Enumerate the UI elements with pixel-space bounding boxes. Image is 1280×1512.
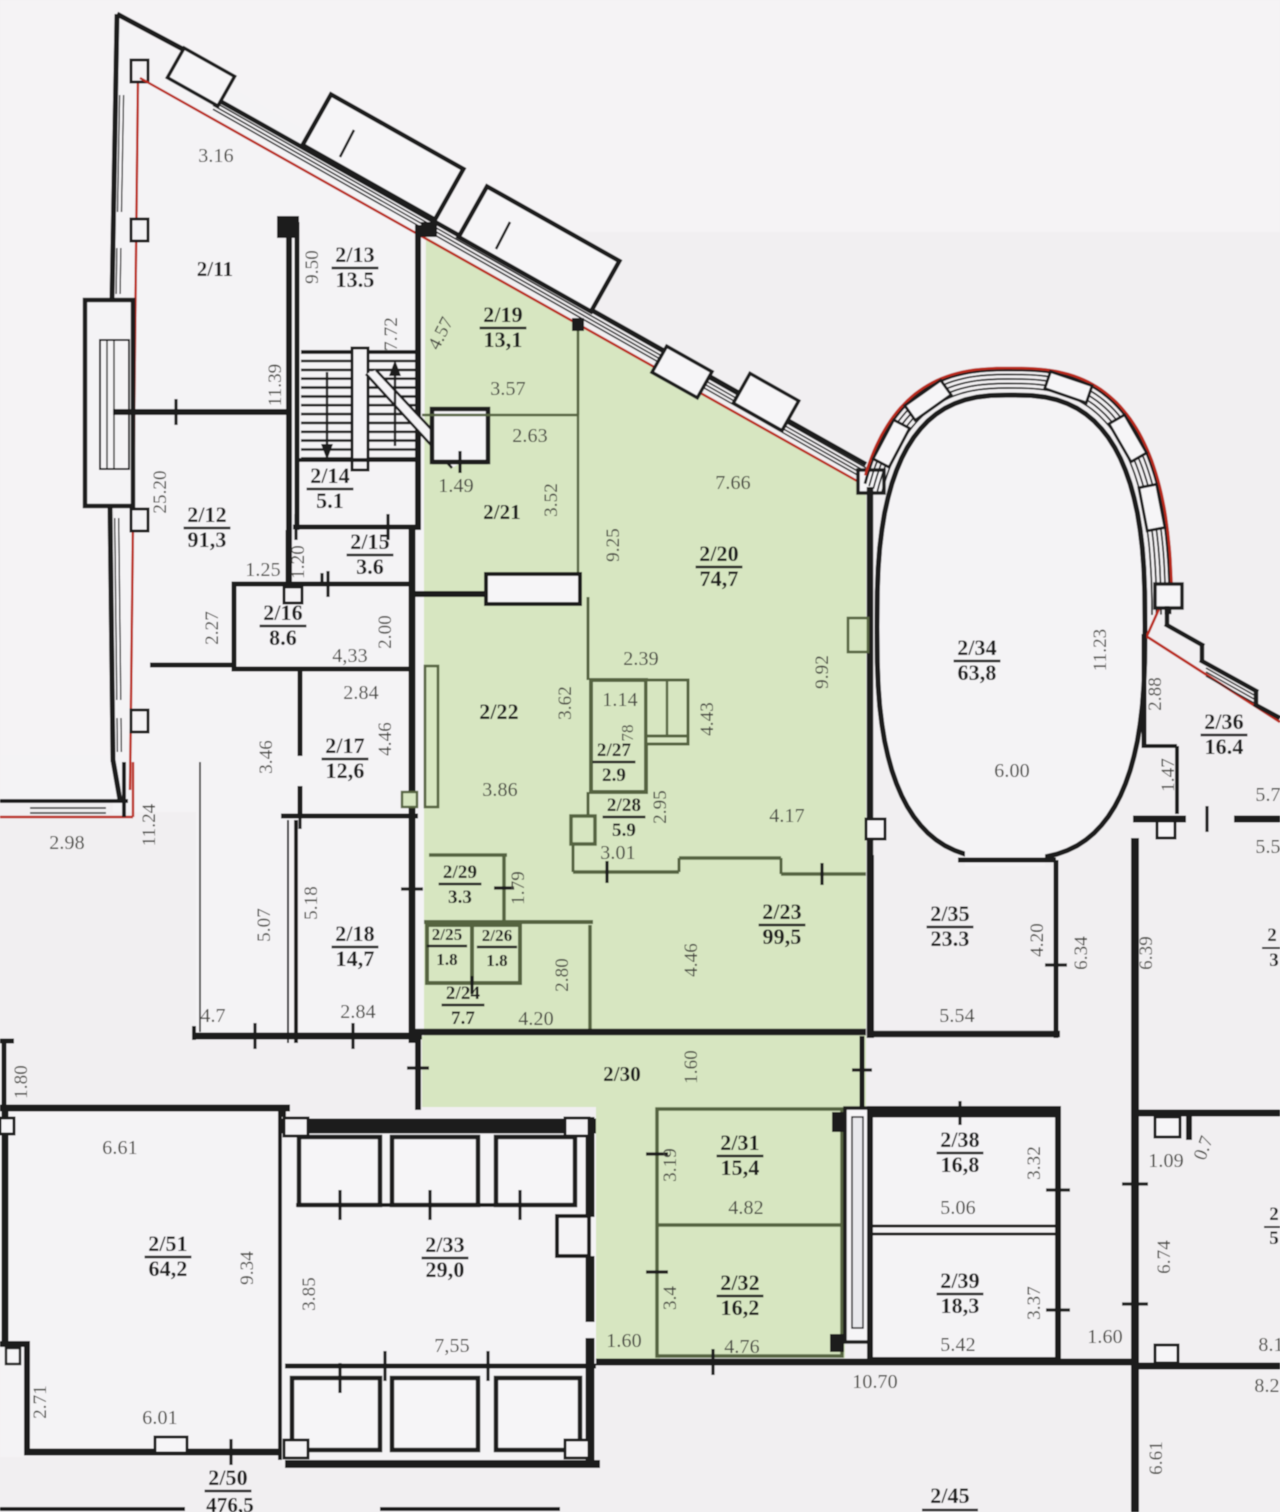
svg-text:5.06: 5.06 [940, 1197, 975, 1219]
svg-text:3.86: 3.86 [482, 779, 517, 801]
svg-text:2.80: 2.80 [552, 958, 573, 992]
svg-text:2/21: 2/21 [483, 500, 521, 524]
svg-text:14,7: 14,7 [336, 946, 375, 971]
svg-text:10.70: 10.70 [852, 1371, 898, 1393]
svg-text:2.95: 2.95 [650, 790, 671, 824]
svg-text:2/26: 2/26 [482, 926, 513, 945]
svg-text:1.80: 1.80 [11, 1065, 32, 1099]
svg-text:2/13: 2/13 [335, 242, 375, 267]
svg-text:8.6: 8.6 [269, 625, 297, 650]
svg-text:6.01: 6.01 [142, 1407, 177, 1429]
svg-text:2.9: 2.9 [602, 765, 626, 786]
svg-text:2.71: 2.71 [30, 1385, 51, 1419]
svg-text:2/24: 2/24 [446, 983, 481, 1004]
svg-text:2.39: 2.39 [623, 648, 658, 670]
svg-text:3.46: 3.46 [256, 740, 277, 774]
svg-text:78: 78 [618, 724, 637, 741]
svg-text:2.84: 2.84 [340, 1001, 375, 1023]
svg-text:5.54: 5.54 [939, 1005, 974, 1027]
svg-text:5.1: 5.1 [316, 488, 344, 513]
svg-text:63,8: 63,8 [958, 660, 997, 685]
svg-text:4.17: 4.17 [769, 805, 804, 827]
svg-text:2/34: 2/34 [957, 635, 997, 660]
svg-text:2/35: 2/35 [930, 901, 970, 926]
svg-text:5: 5 [1269, 1228, 1279, 1249]
svg-text:4,33: 4,33 [332, 645, 367, 667]
svg-text:4.7: 4.7 [200, 1005, 225, 1027]
svg-text:11.39: 11.39 [265, 364, 286, 407]
svg-text:13,1: 13,1 [484, 327, 523, 352]
svg-text:3.85: 3.85 [299, 1277, 320, 1311]
svg-text:2.98: 2.98 [49, 832, 84, 854]
svg-text:3.6: 3.6 [356, 554, 384, 579]
svg-text:2/19: 2/19 [483, 302, 523, 327]
svg-text:5.5: 5.5 [1255, 836, 1280, 858]
svg-text:3.01: 3.01 [600, 842, 635, 864]
svg-text:2/38: 2/38 [940, 1127, 980, 1152]
svg-text:3.3: 3.3 [448, 887, 472, 908]
svg-text:12,6: 12,6 [326, 758, 365, 783]
svg-text:4.76: 4.76 [724, 1336, 759, 1358]
svg-text:2: 2 [1269, 1204, 1279, 1225]
svg-text:1.60: 1.60 [681, 1050, 702, 1084]
svg-text:74,7: 74,7 [700, 566, 739, 591]
svg-text:1.79: 1.79 [508, 871, 529, 905]
svg-text:16,8: 16,8 [941, 1152, 980, 1177]
svg-text:1.25: 1.25 [245, 559, 280, 581]
svg-text:2/12: 2/12 [187, 502, 227, 527]
svg-text:4.82: 4.82 [728, 1197, 763, 1219]
svg-text:2/51: 2/51 [148, 1231, 188, 1256]
svg-text:91,3: 91,3 [188, 527, 227, 552]
svg-text:7.66: 7.66 [715, 472, 750, 494]
svg-text:5.42: 5.42 [940, 1334, 975, 1356]
svg-text:2/30: 2/30 [603, 1062, 641, 1086]
svg-text:8.2: 8.2 [1254, 1375, 1279, 1397]
svg-text:25.20: 25.20 [150, 470, 171, 513]
svg-text:2/50: 2/50 [208, 1465, 248, 1490]
svg-text:2/11: 2/11 [197, 257, 234, 281]
svg-text:3.52: 3.52 [541, 483, 562, 517]
svg-text:2/33: 2/33 [425, 1232, 465, 1257]
svg-text:2/39: 2/39 [940, 1268, 980, 1293]
svg-text:2/36: 2/36 [1204, 709, 1244, 734]
svg-text:2.84: 2.84 [343, 682, 378, 704]
svg-text:16.4: 16.4 [1205, 734, 1244, 759]
svg-text:8.1: 8.1 [1258, 1334, 1280, 1356]
svg-text:2/29: 2/29 [443, 862, 477, 883]
svg-text:23.3: 23.3 [931, 926, 970, 951]
svg-text:1.60: 1.60 [606, 1330, 641, 1352]
svg-text:2/14: 2/14 [310, 463, 350, 488]
svg-text:2.88: 2.88 [1145, 677, 1166, 711]
svg-text:29,0: 29,0 [426, 1257, 465, 1282]
svg-text:2/22: 2/22 [479, 699, 519, 724]
svg-text:6.61: 6.61 [102, 1137, 137, 1159]
svg-text:4.20: 4.20 [518, 1008, 553, 1030]
svg-text:5.18: 5.18 [301, 886, 322, 920]
svg-text:2/23: 2/23 [762, 899, 802, 924]
svg-text:2/20: 2/20 [699, 541, 739, 566]
svg-text:1.60: 1.60 [1087, 1326, 1122, 1348]
svg-text:2/28: 2/28 [607, 795, 641, 816]
svg-text:9.50: 9.50 [302, 250, 323, 284]
svg-text:2.27: 2.27 [202, 611, 223, 645]
svg-text:1.47: 1.47 [1158, 758, 1179, 792]
svg-text:6.00: 6.00 [994, 760, 1029, 782]
svg-text:2: 2 [1267, 925, 1277, 946]
svg-text:3.16: 3.16 [198, 145, 233, 167]
svg-text:2/18: 2/18 [335, 921, 375, 946]
svg-text:3.32: 3.32 [1024, 1146, 1045, 1180]
svg-text:6.34: 6.34 [1071, 936, 1092, 970]
svg-text:476,5: 476,5 [206, 1493, 254, 1512]
svg-text:1.09: 1.09 [1148, 1150, 1183, 1172]
svg-text:7.72: 7.72 [381, 317, 402, 351]
svg-text:2/25: 2/25 [432, 925, 463, 944]
svg-text:2/16: 2/16 [263, 600, 303, 625]
svg-text:5.7: 5.7 [1255, 784, 1280, 806]
svg-text:3: 3 [1269, 950, 1279, 971]
svg-text:7.7: 7.7 [451, 1008, 475, 1029]
svg-text:64,2: 64,2 [149, 1256, 188, 1281]
svg-text:11.23: 11.23 [1090, 629, 1111, 672]
svg-text:4.46: 4.46 [375, 722, 396, 756]
svg-text:1.14: 1.14 [602, 689, 637, 711]
svg-text:3.57: 3.57 [490, 378, 525, 400]
svg-text:1.49: 1.49 [438, 475, 473, 497]
svg-text:13.5: 13.5 [336, 267, 375, 292]
svg-text:4.43: 4.43 [697, 702, 718, 736]
svg-text:4.20: 4.20 [1027, 923, 1048, 957]
svg-text:2/32: 2/32 [720, 1270, 760, 1295]
svg-text:2/27: 2/27 [597, 740, 632, 761]
svg-text:2/45: 2/45 [930, 1483, 970, 1508]
svg-text:9.34: 9.34 [237, 1251, 258, 1285]
svg-text:1.8: 1.8 [436, 950, 458, 969]
svg-text:1.20: 1.20 [288, 545, 309, 579]
svg-text:9.25: 9.25 [603, 528, 624, 562]
svg-text:2/17: 2/17 [325, 733, 365, 758]
svg-text:6.74: 6.74 [1154, 1240, 1175, 1274]
svg-text:2/31: 2/31 [720, 1130, 760, 1155]
svg-text:5.07: 5.07 [254, 908, 275, 942]
svg-text:9.92: 9.92 [812, 655, 833, 689]
svg-text:7,55: 7,55 [434, 1335, 469, 1357]
svg-text:18,3: 18,3 [941, 1293, 980, 1318]
svg-text:3.4: 3.4 [660, 1286, 681, 1310]
svg-text:11.24: 11.24 [139, 803, 160, 846]
svg-text:6.61: 6.61 [1146, 1441, 1167, 1475]
svg-text:3.19: 3.19 [660, 1148, 681, 1182]
svg-text:2.63: 2.63 [512, 425, 547, 447]
svg-text:2/15: 2/15 [350, 529, 390, 554]
svg-text:6.39: 6.39 [1136, 936, 1157, 970]
svg-text:15,4: 15,4 [721, 1155, 760, 1180]
svg-text:16,2: 16,2 [721, 1295, 760, 1320]
svg-text:2.00: 2.00 [375, 615, 396, 649]
svg-text:5.9: 5.9 [612, 820, 636, 841]
svg-text:99,5: 99,5 [763, 924, 802, 949]
svg-text:1.8: 1.8 [486, 951, 508, 970]
svg-text:4.46: 4.46 [681, 943, 702, 977]
svg-text:3.37: 3.37 [1024, 1286, 1045, 1320]
svg-text:3.62: 3.62 [555, 686, 576, 720]
